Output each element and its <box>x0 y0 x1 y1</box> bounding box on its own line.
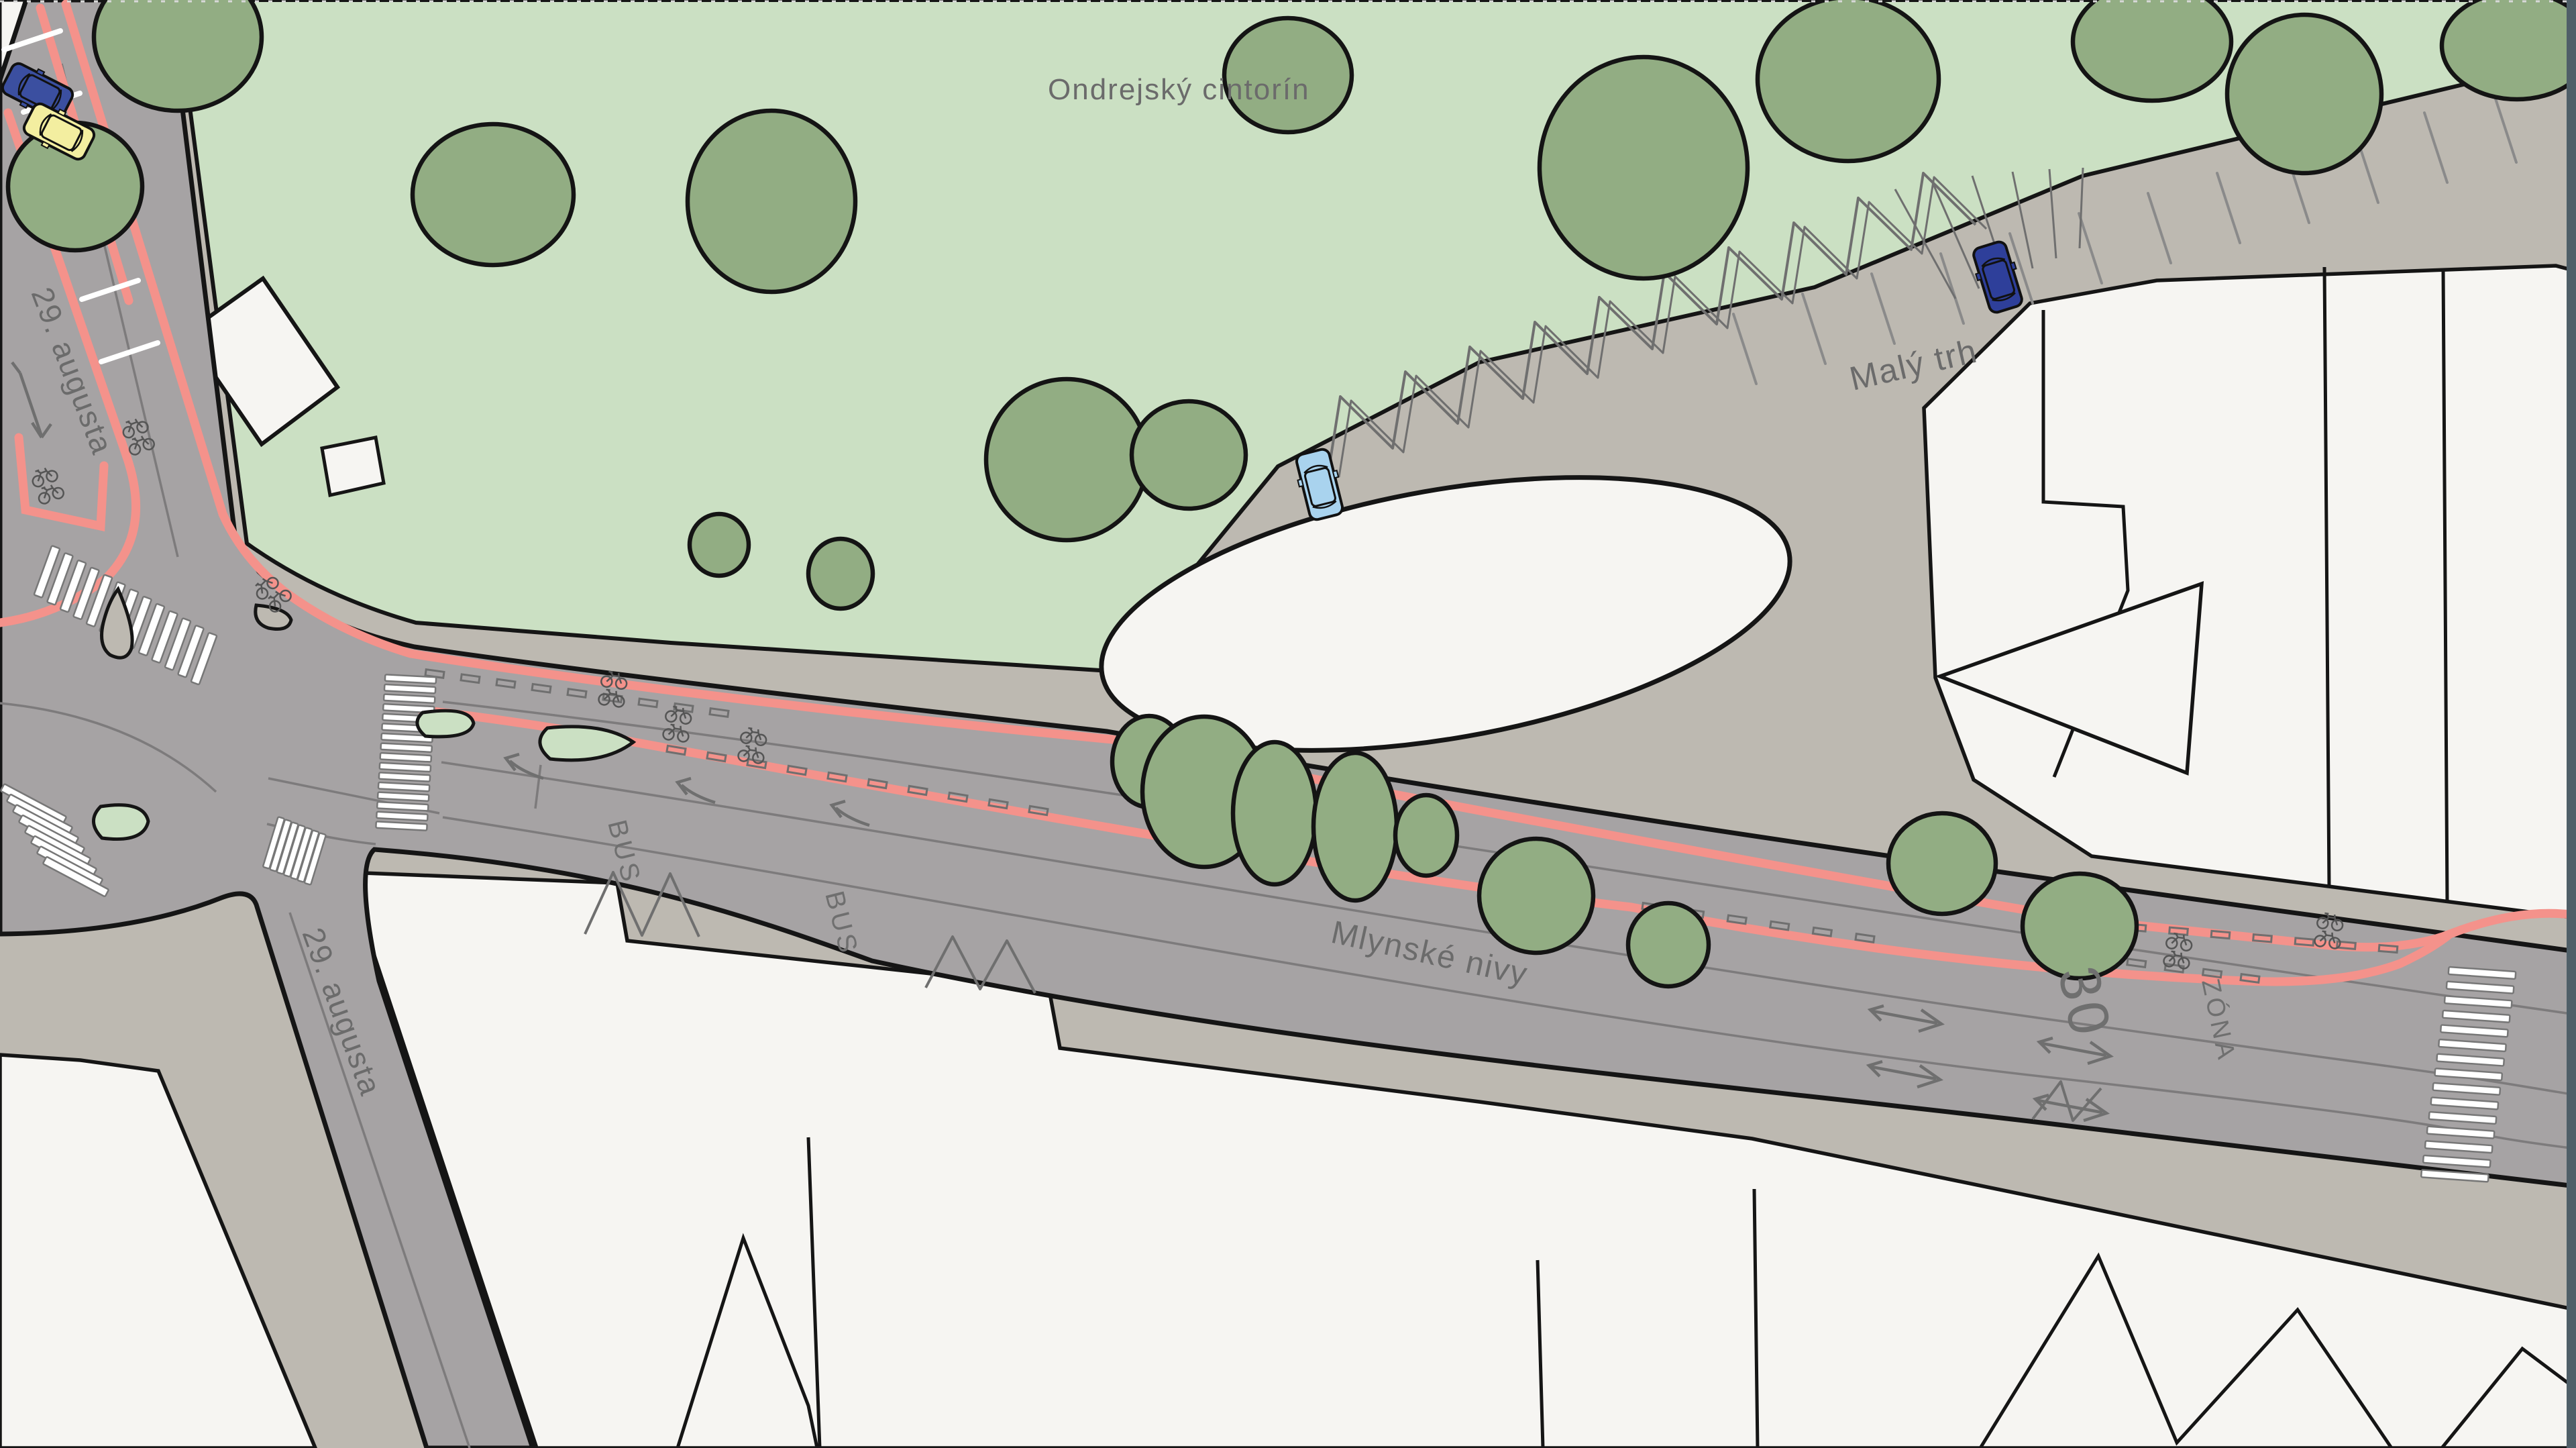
tree <box>1540 57 1748 278</box>
tree <box>1132 401 1246 509</box>
tree <box>1313 753 1397 900</box>
tree <box>1628 903 1709 986</box>
tree <box>1233 742 1316 884</box>
tree <box>2073 0 2231 101</box>
tree <box>413 124 574 265</box>
tree <box>1758 0 1939 161</box>
tree <box>690 514 749 576</box>
tree <box>1479 839 1593 953</box>
tree <box>986 379 1147 540</box>
tree <box>1395 795 1457 876</box>
tree <box>808 539 873 609</box>
tree <box>2442 0 2576 99</box>
right-edge-strip <box>2567 0 2576 1448</box>
street-label: Ondrejský cintorín <box>1048 73 1310 106</box>
map-canvas[interactable]: Ondrejský cintorínMalý trhMlynské nivy29… <box>0 0 2576 1448</box>
tree <box>688 111 855 292</box>
tree <box>1888 813 1996 914</box>
tree <box>2227 15 2381 173</box>
tree <box>2023 874 2137 978</box>
